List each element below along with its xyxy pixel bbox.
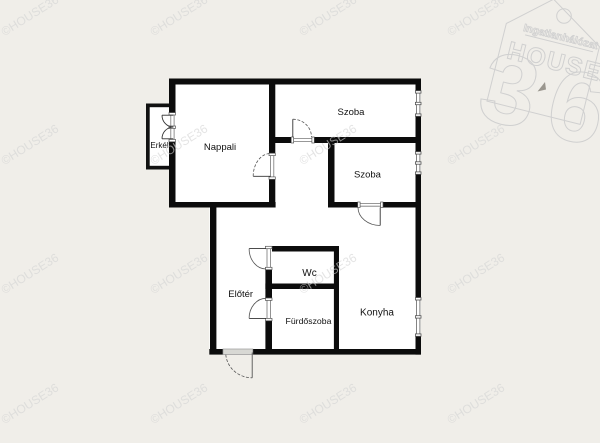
svg-text:Előtér: Előtér xyxy=(228,289,253,300)
svg-text:Konyha: Konyha xyxy=(360,308,394,319)
svg-text:Nappali: Nappali xyxy=(204,142,236,153)
svg-text:Szoba: Szoba xyxy=(354,170,382,181)
svg-text:Fürdőszoba: Fürdőszoba xyxy=(286,316,332,326)
svg-text:Szoba: Szoba xyxy=(338,107,366,118)
